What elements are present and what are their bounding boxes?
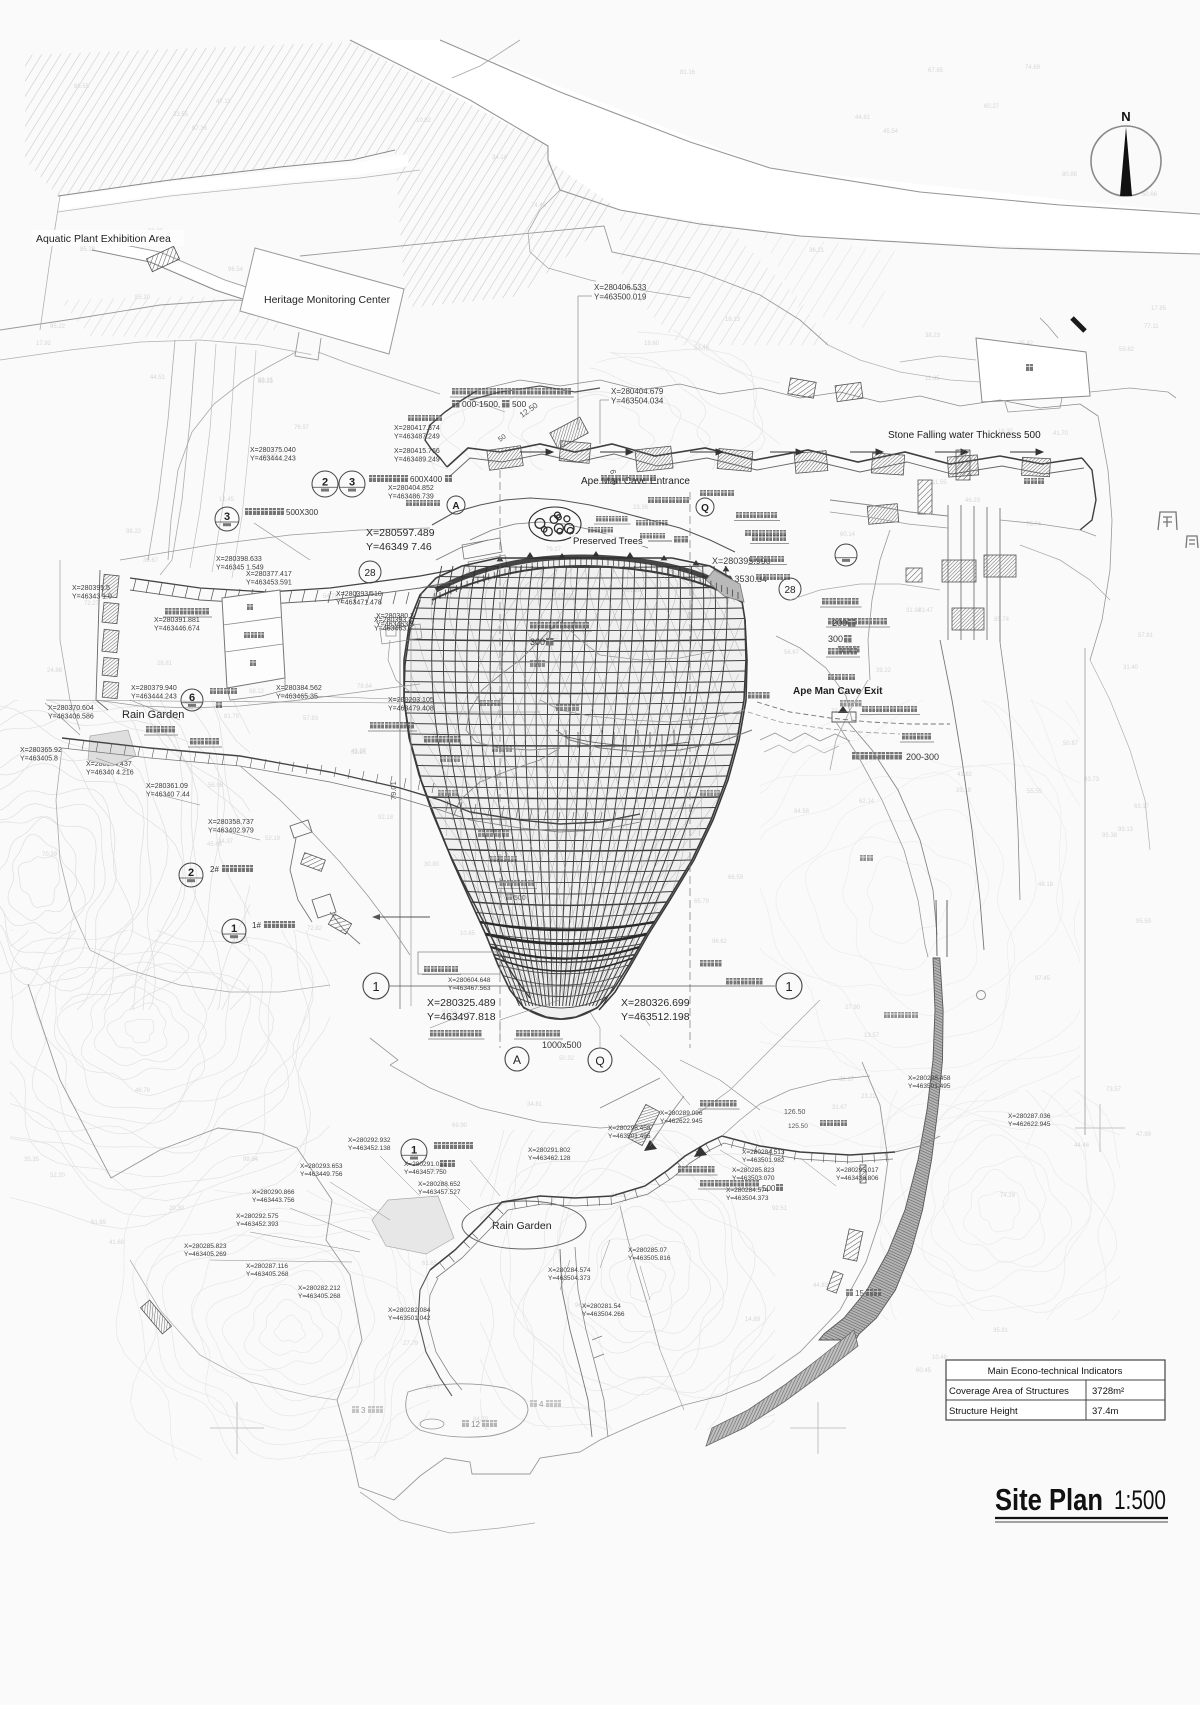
svg-text:85.74: 85.74 [994,617,1010,623]
svg-text:66.59: 66.59 [728,875,744,881]
svg-text:X=280325.489: X=280325.489 [427,997,496,1009]
svg-text:Y=463489.249: Y=463489.249 [394,457,440,464]
svg-text:Y=463453.591: Y=463453.591 [246,580,292,587]
svg-text:11.55: 11.55 [932,480,947,486]
svg-text:39.67: 39.67 [143,558,159,564]
svg-text:X=280292.932: X=280292.932 [348,1137,391,1144]
svg-text:Y=463457.527: Y=463457.527 [418,1189,461,1196]
svg-text:24.86: 24.86 [47,668,63,674]
svg-text:Y=463467.563: Y=463467.563 [448,985,491,992]
svg-text:Y=463501.982: Y=463501.982 [742,1157,785,1164]
svg-text:Y=463497.818: Y=463497.818 [427,1011,496,1023]
svg-text:38.23: 38.23 [925,333,941,339]
svg-text:200: 200 [832,618,847,628]
svg-text:18.60: 18.60 [644,341,660,347]
svg-text:Y=463444.243: Y=463444.243 [131,694,177,701]
svg-text:72.27: 72.27 [84,601,100,607]
svg-text:X=280284.574: X=280284.574 [548,1267,591,1274]
svg-text:50.87: 50.87 [1063,741,1079,747]
svg-text:X=280285.07: X=280285.07 [628,1247,667,1254]
svg-text:600X400: 600X400 [410,475,443,484]
svg-text:44.83: 44.83 [813,1283,829,1289]
svg-text:99.84: 99.84 [243,1157,259,1163]
svg-text:62.14: 62.14 [859,799,875,805]
svg-text:Y=463405.8: Y=463405.8 [20,756,58,763]
svg-text:X=280370.604: X=280370.604 [48,705,94,712]
svg-text:X=280282.212: X=280282.212 [298,1285,341,1292]
svg-text:Y=463446.674: Y=463446.674 [154,626,200,633]
svg-text:Y=463505.816: Y=463505.816 [628,1255,671,1262]
svg-text:Y=463504.266: Y=463504.266 [582,1311,625,1318]
svg-text:Y=463512.198: Y=463512.198 [621,1011,690,1023]
svg-text:X=280358.737: X=280358.737 [208,819,254,826]
svg-text:2: 2 [322,476,328,488]
svg-text:56.67: 56.67 [784,650,800,656]
svg-text:Y=463449.756: Y=463449.756 [300,1171,343,1178]
svg-text:45.68: 45.68 [207,842,223,848]
svg-text:X=280393.510: X=280393.510 [336,591,382,598]
svg-text:33.55: 33.55 [173,112,189,118]
svg-text:92.18: 92.18 [378,815,394,821]
svg-text:31.40: 31.40 [1123,665,1139,671]
svg-text:126.50: 126.50 [784,1109,806,1116]
svg-text:78.64: 78.64 [357,684,373,690]
svg-text:60.27: 60.27 [984,104,1000,110]
svg-text:79.27: 79.27 [546,547,562,553]
svg-text:41.70: 41.70 [1053,431,1069,437]
svg-text:72.82: 72.82 [307,926,323,932]
svg-text:X=280287.036: X=280287.036 [1008,1113,1051,1120]
svg-text:Heritage Monitoring Center: Heritage Monitoring Center [264,294,391,306]
svg-text:96.54: 96.54 [228,267,244,273]
svg-text:X=280417.374: X=280417.374 [394,425,440,432]
svg-text:60.45: 60.45 [916,1368,932,1374]
svg-text:Y=463504.373: Y=463504.373 [548,1275,591,1282]
svg-text:Rain Garden: Rain Garden [492,1220,552,1232]
svg-text:X=280288.652: X=280288.652 [418,1181,461,1188]
svg-text:X=280404.679: X=280404.679 [611,387,664,396]
svg-text:Y=463500.019: Y=463500.019 [594,293,647,302]
svg-text:1: 1 [372,979,379,994]
svg-text:Stone Falling water Thickness: Stone Falling water Thickness 500 [888,430,1041,441]
svg-text:92.51: 92.51 [772,1206,788,1212]
svg-text:Y=463452.393: Y=463452.393 [236,1221,279,1228]
svg-text:74.29: 74.29 [1000,1193,1016,1199]
svg-text:48.18: 48.18 [1038,882,1054,888]
svg-text:76.97: 76.97 [294,425,310,431]
svg-text:Structure Height: Structure Height [949,1406,1018,1417]
svg-text:Y=46340 7.44: Y=46340 7.44 [146,792,190,799]
svg-text:Y=46343 1.0: Y=46343 1.0 [72,594,112,601]
svg-text:Site Plan: Site Plan [995,1482,1103,1517]
svg-text:98.22: 98.22 [126,529,142,535]
svg-text:81.79: 81.79 [224,714,240,720]
svg-text:Y=463452.138: Y=463452.138 [348,1145,391,1152]
svg-text:Y=463405.268: Y=463405.268 [298,1293,341,1300]
svg-text:Y=463405.269: Y=463405.269 [184,1251,227,1258]
svg-text:23.22: 23.22 [861,1094,877,1100]
svg-text:56.96: 56.96 [208,783,224,789]
svg-text:70.39: 70.39 [42,852,58,858]
svg-text:23.36: 23.36 [633,505,649,511]
svg-text:67.85: 67.85 [928,68,944,74]
svg-text:59.82: 59.82 [1119,347,1135,353]
svg-text:X=280284.574: X=280284.574 [726,1187,769,1194]
svg-text:Y=463501.495: Y=463501.495 [608,1133,651,1140]
svg-text:3728m²: 3728m² [1092,1386,1124,1397]
svg-text:36.21: 36.21 [809,248,825,254]
svg-text:37.4m: 37.4m [1092,1406,1118,1417]
svg-text:125.50: 125.50 [788,1123,808,1130]
svg-text:X=280291.802: X=280291.802 [528,1147,571,1154]
svg-text:3: 3 [361,1406,366,1415]
svg-text:Q: Q [595,1054,604,1068]
svg-text:13.57: 13.57 [864,1033,880,1039]
svg-text:45.54: 45.54 [883,129,899,135]
svg-text:X=280290.866: X=280290.866 [252,1189,295,1196]
svg-text:85.20: 85.20 [135,295,151,301]
svg-text:300: 300 [828,634,843,644]
svg-text:X=280398.633: X=280398.633 [216,556,262,563]
svg-text:Y=46349 7.46: Y=46349 7.46 [366,541,432,553]
svg-text:28.81: 28.81 [157,661,173,667]
svg-text:31.94: 31.94 [906,608,922,614]
svg-text:Y=463443.756: Y=463443.756 [252,1197,295,1204]
svg-text:97.45: 97.45 [1035,976,1051,982]
svg-text:X=280415.766: X=280415.766 [394,448,440,455]
svg-text:1#: 1# [252,921,261,930]
svg-text:3: 3 [349,476,355,488]
svg-text:Y=463501.495: Y=463501.495 [908,1083,951,1090]
svg-text:18.13: 18.13 [725,317,741,323]
svg-text:2: 2 [188,867,194,879]
svg-text:X=280365.92: X=280365.92 [20,747,62,754]
svg-text:500: 500 [514,895,526,902]
svg-text:X=280285.823: X=280285.823 [184,1243,227,1250]
svg-text:10.62: 10.62 [416,118,432,124]
svg-text:67.36: 67.36 [192,126,208,132]
svg-text:X=280375.040: X=280375.040 [250,447,296,454]
svg-text:X=280288.458: X=280288.458 [908,1075,951,1082]
svg-text:84.58: 84.58 [794,809,810,815]
svg-text:20.30: 20.30 [169,1206,185,1212]
svg-text:52.19: 52.19 [265,836,281,842]
svg-text:X=280284.513: X=280284.513 [742,1149,785,1156]
svg-text:44.81: 44.81 [855,115,871,121]
svg-text:73.57: 73.57 [1106,1087,1122,1093]
svg-text:Y=463402.979: Y=463402.979 [208,828,254,835]
svg-text:X=280391.881: X=280391.881 [154,617,200,624]
svg-text:17.85: 17.85 [1151,306,1167,312]
svg-text:X=280406.533: X=280406.533 [594,283,647,292]
svg-text:200-300: 200-300 [906,752,939,762]
svg-text:57.81: 57.81 [1138,633,1154,639]
svg-text:X=280326.699: X=280326.699 [621,997,690,1009]
svg-text:95.22: 95.22 [50,324,66,330]
svg-text:Y=462622.945: Y=462622.945 [1008,1121,1051,1128]
svg-text:33.95: 33.95 [351,750,367,756]
svg-text:61.69: 61.69 [91,1220,107,1226]
svg-text:88.12: 88.12 [249,689,265,695]
svg-text:53.46: 53.46 [694,345,710,351]
svg-text:34.81: 34.81 [527,1102,543,1108]
svg-text:Y=463504.373: Y=463504.373 [726,1195,769,1202]
svg-text:Y=463436.806: Y=463436.806 [836,1175,879,1182]
svg-text:69.90: 69.90 [452,1123,468,1129]
svg-text:Y=463501.042: Y=463501.042 [388,1315,431,1322]
svg-text:Main Econo-technical Indicator: Main Econo-technical Indicators [988,1366,1123,1377]
svg-text:6: 6 [189,692,195,704]
svg-text:12: 12 [471,1420,480,1429]
svg-text:X=280295.017: X=280295.017 [836,1167,879,1174]
svg-text:Y=463457.750: Y=463457.750 [404,1169,447,1176]
svg-text:96.62: 96.62 [712,939,728,945]
svg-text:95.38: 95.38 [1102,833,1118,839]
svg-text:300: 300 [530,637,545,647]
svg-text:60.14: 60.14 [840,532,856,538]
svg-text:35.35: 35.35 [24,1157,40,1163]
svg-text:41.68: 41.68 [109,1240,125,1246]
svg-text:X=280292.575: X=280292.575 [236,1213,279,1220]
svg-text:83.73: 83.73 [1084,777,1100,783]
svg-text:28: 28 [784,585,796,596]
svg-text:X=280285.823: X=280285.823 [732,1167,775,1174]
svg-text:3: 3 [224,511,230,523]
svg-text:Y=462622.945: Y=462622.945 [660,1118,703,1125]
svg-text:95.59: 95.59 [1136,919,1152,925]
svg-text:X=280384.562: X=280384.562 [276,685,322,692]
svg-text:30.80: 30.80 [424,862,440,868]
svg-text:X=280298.458: X=280298.458 [608,1125,651,1132]
svg-text:44.51: 44.51 [150,375,166,381]
svg-text:X=280281.54: X=280281.54 [582,1303,621,1310]
svg-text:Y=46340 4.216: Y=46340 4.216 [86,770,134,777]
svg-text:46.23: 46.23 [965,498,981,504]
svg-text:50.32: 50.32 [559,1056,575,1062]
svg-text:47.99: 47.99 [1136,1132,1152,1138]
svg-text:500X300: 500X300 [286,508,319,517]
svg-text:Y=463405.268: Y=463405.268 [246,1271,289,1278]
svg-text:Y=463479.408: Y=463479.408 [388,706,434,713]
svg-text:Y=463504.034: Y=463504.034 [611,397,664,406]
svg-text:57.83: 57.83 [303,716,319,722]
svg-text:X=280395.5: X=280395.5 [72,585,110,592]
svg-text:Ape Man Cave Entrance: Ape Man Cave Entrance [581,476,690,487]
svg-text:31.67: 31.67 [832,1105,848,1111]
svg-text:55.55: 55.55 [1027,789,1043,795]
svg-text:27.79: 27.79 [403,1341,419,1347]
svg-text:1: 1 [411,1144,417,1156]
svg-text:12.45: 12.45 [219,497,235,503]
svg-text:1000x500: 1000x500 [542,1040,582,1050]
svg-text:28: 28 [364,568,376,579]
svg-text:Y=463462.128: Y=463462.128 [528,1155,571,1162]
svg-text:Q: Q [701,503,709,514]
svg-text:Coverage Area of Structures: Coverage Area of Structures [949,1386,1069,1397]
svg-text:80.88: 80.88 [1062,172,1078,178]
svg-text:47.11: 47.11 [216,99,231,105]
svg-text:17.92: 17.92 [36,341,52,347]
svg-text:15: 15 [855,1289,864,1298]
svg-text:63.17: 63.17 [1134,804,1150,810]
svg-text:4: 4 [539,1400,544,1409]
svg-text:Y=463471.478: Y=463471.478 [336,600,382,607]
svg-text:1:500: 1:500 [1114,1485,1166,1515]
svg-text:X=280404.852: X=280404.852 [388,485,434,492]
svg-text:X=280377.417: X=280377.417 [246,571,292,578]
svg-text:X=280604.648: X=280604.648 [448,977,491,984]
svg-text:46.78: 46.78 [135,1088,151,1094]
svg-text:X=280379.940: X=280379.940 [131,685,177,692]
svg-text:X=280287.116: X=280287.116 [246,1263,288,1270]
svg-text:A: A [452,501,459,512]
svg-text:65.79: 65.79 [694,899,710,905]
svg-text:A: A [513,1053,521,1067]
svg-text:X=280393.3: X=280393.3 [374,617,412,624]
svg-text:10.65: 10.65 [460,931,476,937]
svg-text:X=280289.096: X=280289.096 [660,1110,703,1117]
svg-text:Preserved Trees: Preserved Trees [573,536,643,547]
svg-text:X=280597.489: X=280597.489 [366,527,435,539]
svg-text:Ape Man Cave Exit: Ape Man Cave Exit [793,686,883,697]
svg-text:Aquatic Plant Exhibition Area: Aquatic Plant Exhibition Area [36,233,171,245]
svg-text:1: 1 [231,923,237,935]
svg-text:Rain Garden: Rain Garden [122,709,184,721]
svg-text:X=280361.09: X=280361.09 [146,783,188,790]
svg-text:74.69: 74.69 [1025,65,1041,71]
svg-text:10.48: 10.48 [932,1355,948,1361]
svg-text:50.15: 50.15 [258,378,274,384]
svg-text:44.46: 44.46 [1074,1143,1090,1149]
svg-text:1: 1 [785,979,792,994]
svg-text:Y=463463.5: Y=463463.5 [374,626,412,633]
svg-text:27.90: 27.90 [845,1005,861,1011]
svg-text:50.66: 50.66 [1142,192,1158,198]
svg-text:14.89: 14.89 [745,1317,761,1323]
svg-text:X=280282.084: X=280282.084 [388,1307,431,1314]
svg-text:81.16: 81.16 [680,70,696,76]
svg-text:Y=463487.249: Y=463487.249 [394,434,440,441]
svg-text:35.91: 35.91 [993,1328,1009,1334]
svg-text:33.18: 33.18 [956,788,972,794]
svg-text:Y=463503.070: Y=463503.070 [732,1175,775,1182]
svg-text:Y=463465.35: Y=463465.35 [276,694,318,701]
svg-text:34.14: 34.14 [492,155,508,161]
svg-text:Y=463486.739: Y=463486.739 [388,494,434,501]
svg-text:Y=463444.243: Y=463444.243 [250,456,296,463]
svg-text:66.55: 66.55 [74,84,90,90]
svg-text:77.11: 77.11 [1144,324,1159,330]
svg-text:N: N [1121,109,1130,124]
svg-text:Y=463406.586: Y=463406.586 [48,714,94,721]
svg-text:93.13: 93.13 [1118,827,1134,833]
svg-text:000-1500,: 000-1500, [462,399,500,409]
svg-text:39.22: 39.22 [876,668,892,674]
svg-text:2#: 2# [210,865,219,874]
svg-text:X=280293.653: X=280293.653 [300,1163,343,1170]
svg-text:52.20: 52.20 [50,1173,66,1179]
